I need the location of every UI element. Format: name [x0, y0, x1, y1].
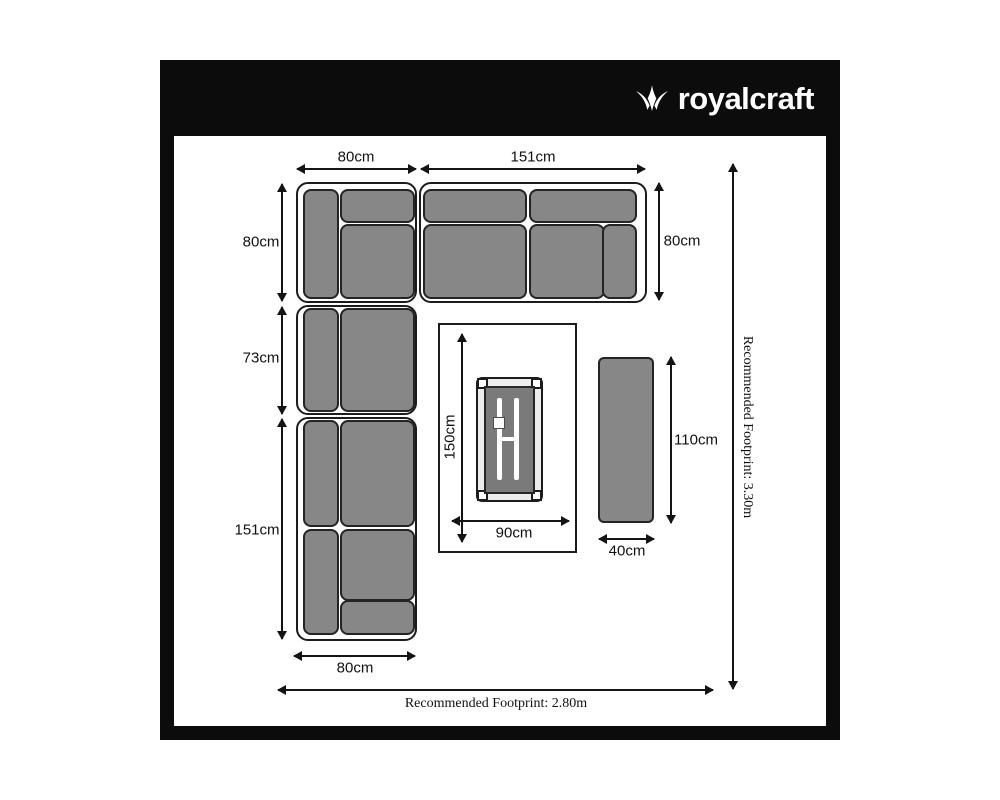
dim-label-bench-width: 40cm	[609, 544, 646, 559]
table-burner-knob	[493, 417, 505, 429]
footprint-label-right: Recommended Footprint: 3.30m	[740, 336, 754, 518]
dim-arrow-top-80	[297, 168, 416, 170]
cushion	[340, 189, 415, 223]
cushion	[529, 224, 605, 299]
dim-label-table-width: 90cm	[496, 526, 533, 541]
dim-label-left-mid-length: 73cm	[243, 351, 280, 366]
cushion	[340, 529, 415, 601]
dim-label-bench-length: 110cm	[674, 433, 718, 448]
dim-arrow-table-150	[461, 334, 463, 542]
dim-label-bottom-sofa-width: 80cm	[337, 661, 374, 676]
footprint-arrow-right	[732, 164, 734, 689]
bench	[598, 357, 654, 523]
cushion	[602, 224, 637, 299]
footprint-label-bottom: Recommended Footprint: 2.80m	[405, 697, 587, 711]
cushion	[529, 189, 637, 223]
dim-label-top-corner-width: 80cm	[338, 150, 375, 165]
cushion	[340, 420, 415, 527]
cushion	[303, 529, 339, 635]
cushion	[303, 308, 339, 412]
dim-label-table-length: 150cm	[443, 414, 458, 459]
footprint-arrow-bottom	[278, 689, 713, 691]
cushion	[423, 189, 527, 223]
dim-arrow-table-90	[452, 520, 569, 522]
crown-icon	[635, 85, 669, 112]
cushion	[340, 600, 415, 635]
dim-arrow-top-151	[421, 168, 645, 170]
brand-header: royalcraft	[160, 60, 840, 136]
dim-arrow-bench-40	[599, 538, 654, 540]
cushion	[303, 189, 339, 299]
cushion	[303, 420, 339, 527]
brand-name: royalcraft	[678, 83, 814, 114]
dim-arrow-bottom-80	[294, 655, 415, 657]
cushion	[423, 224, 527, 299]
dim-label-right-sofa-depth: 80cm	[664, 234, 701, 249]
dim-arrow-left-151	[281, 419, 283, 639]
dim-label-right-sofa-width: 151cm	[510, 150, 555, 165]
dim-label-corner-left-depth: 80cm	[243, 235, 280, 250]
cushion	[340, 308, 415, 412]
dim-arrow-left-73	[281, 307, 283, 414]
dim-arrow-right-80	[658, 183, 660, 300]
table-burner-bar	[501, 437, 515, 441]
dim-label-left-sofa-length: 151cm	[234, 523, 279, 538]
dim-arrow-bench-110	[670, 357, 672, 523]
dim-arrow-left-80	[281, 184, 283, 301]
product-dimension-diagram: royalcraft 80cm 151cm 80cm	[0, 0, 1000, 800]
cushion	[340, 224, 415, 299]
